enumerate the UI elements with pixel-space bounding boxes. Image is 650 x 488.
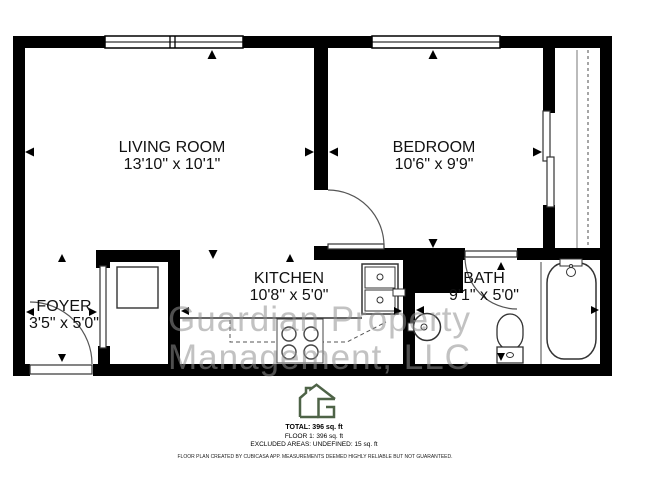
disclaimer-text: FLOOR PLAN CREATED BY CUBICASA APP. MEAS… <box>178 454 453 460</box>
room-name: BEDROOM <box>393 139 476 156</box>
floor-plan-drawing <box>0 0 650 488</box>
room-label-living: LIVING ROOM 13'10" x 10'1" <box>119 139 226 173</box>
laundry-appliance <box>117 267 158 308</box>
wall-top-left <box>13 36 105 48</box>
window-living <box>105 36 243 48</box>
arrow-living-left <box>25 148 34 157</box>
room-label-bath: BATH 9'1" x 5'0" <box>449 270 519 304</box>
door-bedroom-closet-sliding <box>543 111 554 207</box>
door-bedroom <box>328 190 384 249</box>
wall-divider-stub <box>314 246 328 260</box>
room-name: LIVING ROOM <box>119 139 226 156</box>
floor-plan-page: LIVING ROOM 13'10" x 10'1" BEDROOM 10'6"… <box>0 0 650 488</box>
arrow-foyer-bottom <box>58 354 66 362</box>
watermark-line-2: Management, LLC <box>168 338 471 378</box>
wall-bedroom-bottom-left <box>328 248 465 260</box>
wall-top-right <box>500 36 612 48</box>
window-bedroom <box>372 36 500 48</box>
arrow-living-bottom <box>209 250 218 259</box>
wall-left <box>13 36 25 376</box>
wall-foyer-partition-bottom <box>98 346 110 364</box>
wall-bottom-stub <box>13 364 30 376</box>
wall-bedroom-bottom-right <box>517 248 600 260</box>
arrow-bedroom-bottom <box>429 239 438 248</box>
bathtub <box>547 259 596 359</box>
room-name: BATH <box>449 270 519 287</box>
arrow-foyer-top <box>58 254 66 262</box>
room-label-kitchen: KITCHEN 10'8" x 5'0" <box>250 270 329 304</box>
room-dims: 10'6" x 9'9" <box>393 156 476 173</box>
arrow-living-top <box>208 50 217 59</box>
total-area-text: TOTAL: 396 sq. ft <box>285 424 342 431</box>
wall-closet-strip-top <box>543 48 555 113</box>
wall-divider-top <box>314 48 328 190</box>
bedroom-closet-interior <box>577 50 588 248</box>
room-name: FOYER <box>29 298 99 315</box>
cubicasa-logo <box>300 385 335 417</box>
arrow-bedroom-top <box>429 50 438 59</box>
wall-closet-strip-bottom <box>543 205 555 248</box>
arrow-bath-top <box>497 262 505 270</box>
room-name: KITCHEN <box>250 270 329 287</box>
wall-top-mid <box>243 36 372 48</box>
arrow-bedroom-left <box>329 148 338 157</box>
kitchen-faucet <box>393 289 405 296</box>
watermark-line-1: Guardian Property <box>168 300 471 340</box>
room-label-bedroom: BEDROOM 10'6" x 9'9" <box>393 139 476 173</box>
wall-foyer-partition-top <box>96 250 110 268</box>
door-laundry-closet <box>100 266 106 348</box>
room-label-foyer: FOYER 3'5" x 5'0" <box>29 298 99 332</box>
floor-area-text: FLOOR 1: 396 sq. ft <box>285 433 343 440</box>
room-dims: 13'10" x 10'1" <box>119 156 226 173</box>
wall-right <box>600 36 612 376</box>
excluded-area-text: EXCLUDED AREAS: UNDEFINED: 15 sq. ft <box>250 441 377 448</box>
arrow-kitchen-top <box>286 254 294 262</box>
arrow-bedroom-right <box>533 148 542 157</box>
arrow-living-right <box>305 148 314 157</box>
room-dims: 3'5" x 5'0" <box>29 315 99 332</box>
